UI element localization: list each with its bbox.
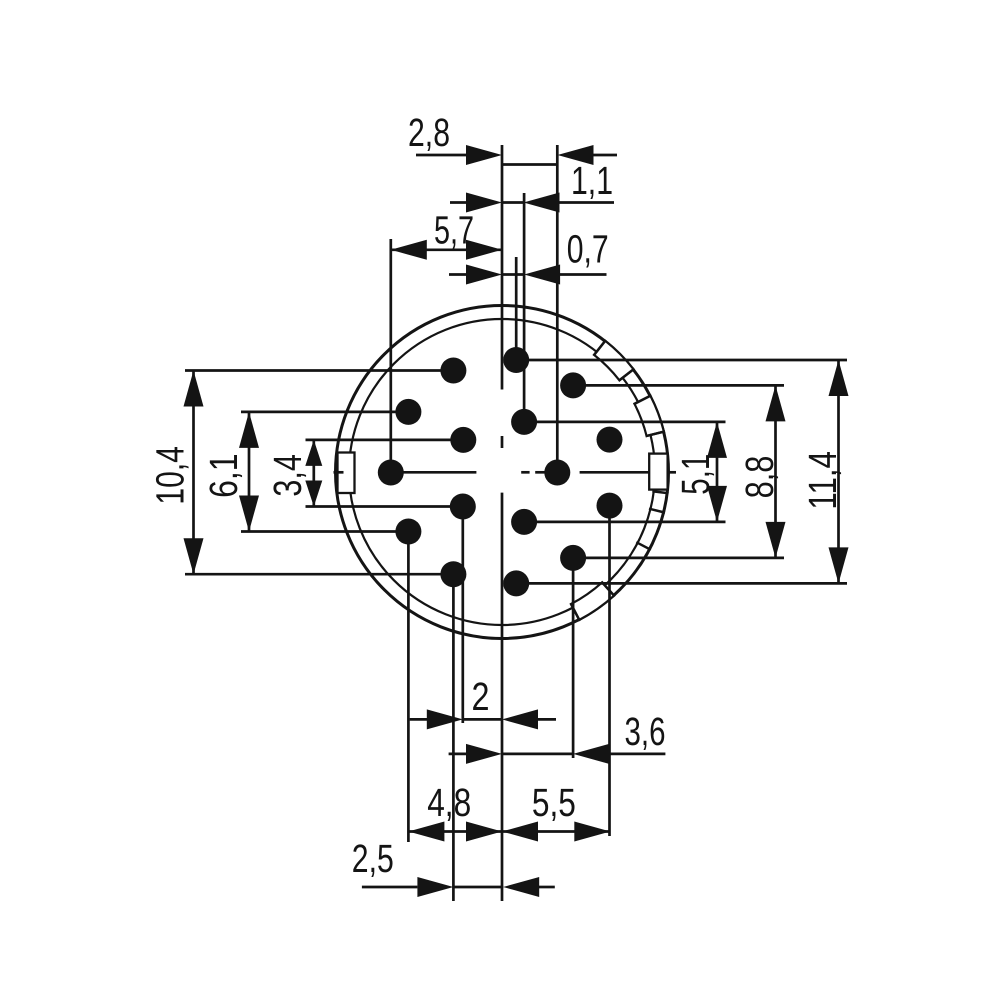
svg-text:3,6: 3,6 xyxy=(625,710,666,754)
svg-text:3,4: 3,4 xyxy=(266,454,310,497)
svg-text:2,8: 2,8 xyxy=(408,111,450,155)
svg-text:8,8: 8,8 xyxy=(738,456,782,499)
svg-text:1,1: 1,1 xyxy=(571,159,613,203)
svg-text:5,1: 5,1 xyxy=(674,454,718,495)
svg-text:5,5: 5,5 xyxy=(532,781,576,825)
svg-text:10,4: 10,4 xyxy=(149,446,193,505)
svg-text:6,1: 6,1 xyxy=(202,453,246,498)
svg-text:0,7: 0,7 xyxy=(567,228,609,272)
svg-text:2,5: 2,5 xyxy=(352,837,394,881)
svg-text:5,7: 5,7 xyxy=(434,209,474,253)
svg-text:4,8: 4,8 xyxy=(427,781,471,825)
svg-text:2: 2 xyxy=(472,675,490,719)
svg-text:11,4: 11,4 xyxy=(801,451,845,510)
